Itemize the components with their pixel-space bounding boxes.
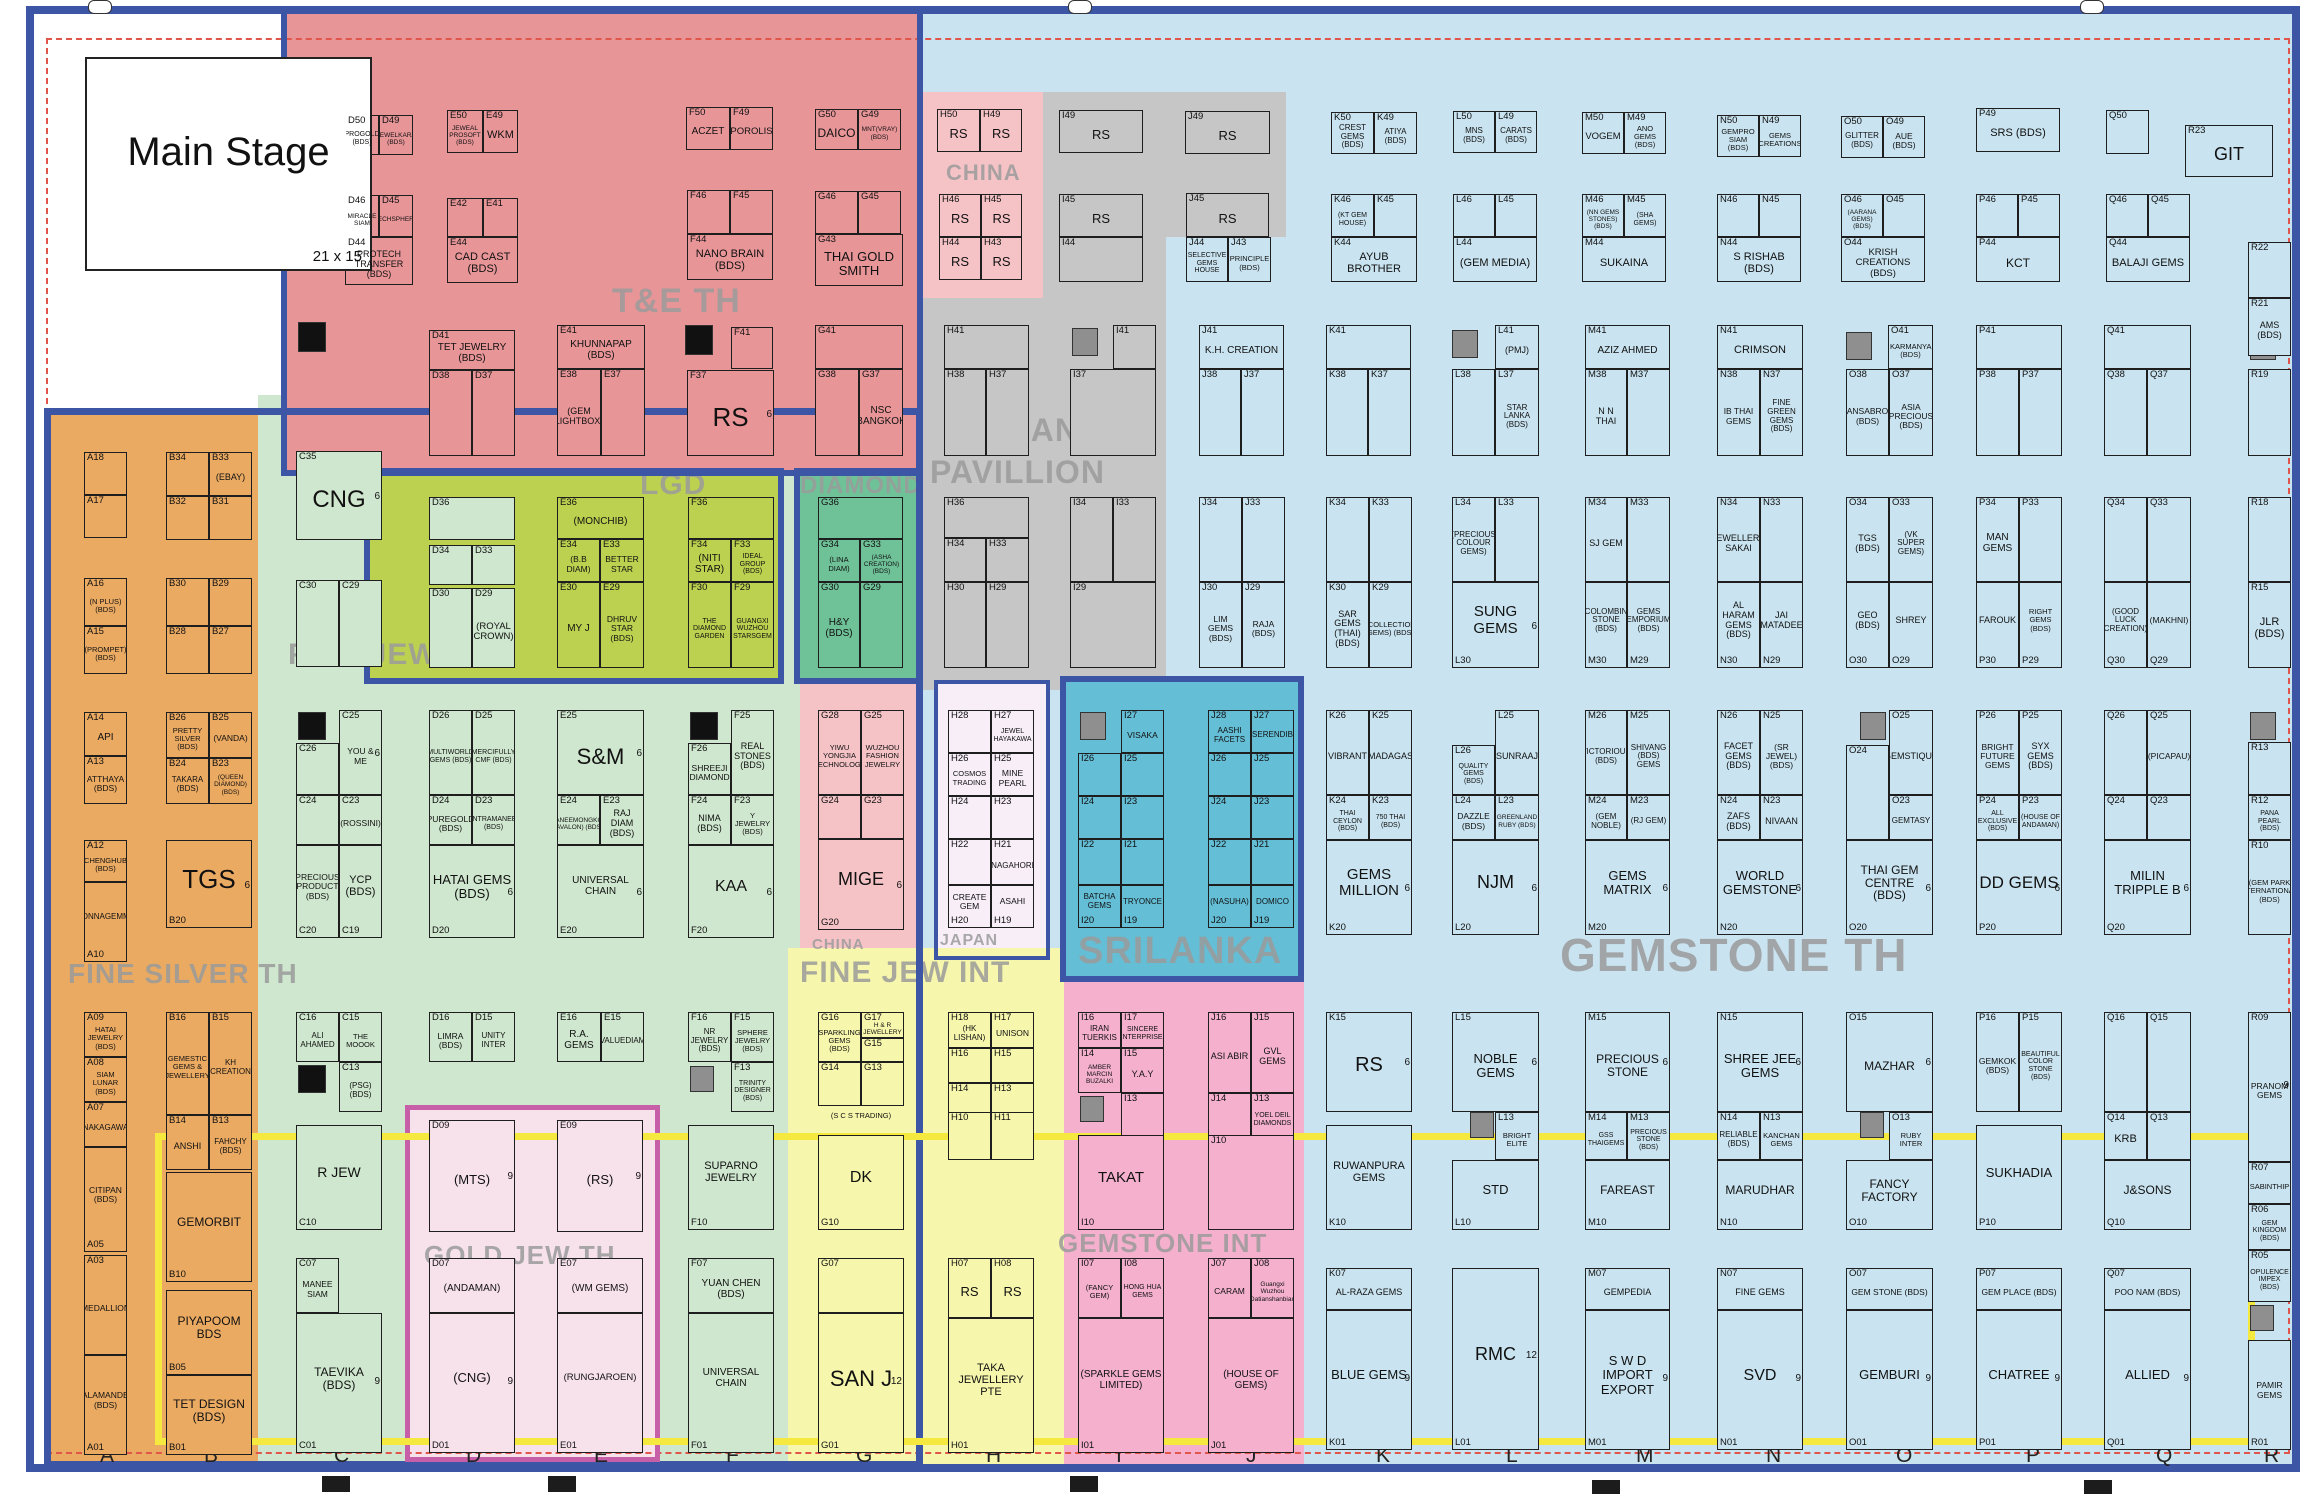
booth-M07[interactable]: M07 GEMPEDIA (1585, 1268, 1670, 1310)
booth-N44[interactable]: N44 S RISHAB (BDS) (1717, 237, 1801, 282)
booth-F15[interactable]: F15 SPHERE JEWELRY (BDS) (731, 1012, 774, 1062)
booth-J20[interactable]: J20 (NASUHA) (1208, 885, 1251, 928)
booth-B30[interactable]: B30 (166, 578, 209, 626)
booth-K23[interactable]: K23 750 THAI (BDS) (1369, 795, 1412, 840)
booth-G46[interactable]: G46 (815, 191, 858, 234)
booth-K20[interactable]: K20 6 GEMS MILLION (1326, 840, 1412, 935)
booth-G14[interactable]: G14 (818, 1062, 861, 1106)
booth-O23[interactable]: O23 GEMTASY (1889, 795, 1933, 840)
booth-F50[interactable]: F50 ACZET (686, 107, 730, 150)
booth-H44[interactable]: H44 RS (939, 237, 981, 280)
booth-K46[interactable]: K46 (KT GEM HOUSE) (1331, 194, 1374, 237)
booth-M14[interactable]: M14 GSS THAIGEMS (1585, 1112, 1627, 1160)
booth-A03[interactable]: A03 MEDALLION (84, 1255, 127, 1355)
booth-Q26[interactable]: Q26 (2104, 710, 2147, 795)
booth-N50[interactable]: N50 GEMPRO SIAM (BDS) (1717, 115, 1759, 157)
booth-M26[interactable]: M26 VICTORIOUS (BDS) (1585, 710, 1627, 795)
booth-D23[interactable]: D23 INTRAMANEE (BDS) (472, 795, 515, 845)
booth-H45[interactable]: H45 RS (981, 194, 1022, 237)
booth-I08[interactable]: I08 HONG HUA GEMS (1121, 1258, 1164, 1318)
booth-G34[interactable]: G34 (LINA DIAM) (818, 539, 860, 582)
booth-E15[interactable]: E15 VALUEDIAM (601, 1012, 644, 1062)
booth-B05[interactable]: B05 PIYAPOOM BDS (166, 1290, 252, 1375)
booth-H27[interactable]: H27 JEWEL HAYAKAWA (991, 710, 1034, 753)
booth-Q46[interactable]: Q46 (2106, 194, 2148, 237)
booth-G30[interactable]: G30 H&Y (BDS) (818, 582, 860, 668)
booth-I07[interactable]: I07 (FANCY GEM) (1078, 1258, 1121, 1318)
booth-O25[interactable]: O25 GEMSTIQUE (1889, 710, 1933, 795)
booth-L15[interactable]: L15 6 NOBLE GEMS (1452, 1012, 1539, 1112)
booth-M49[interactable]: M49 ANO GEMS (BDS) (1624, 112, 1666, 154)
booth-E16[interactable]: E16 R.A. GEMS (557, 1012, 601, 1062)
booth-C19[interactable]: C19 YCP (BDS) (339, 845, 382, 938)
booth-F23[interactable]: F23 Y JEWELRY (BDS) (731, 795, 774, 845)
booth-F45[interactable]: F45 (730, 190, 773, 234)
booth-P45[interactable]: P45 (2018, 194, 2060, 237)
booth-O24[interactable]: O24 (1846, 745, 1889, 840)
booth-D34[interactable]: D34 (429, 545, 472, 585)
booth-N41[interactable]: N41 CRIMSON (1717, 325, 1803, 369)
booth-G24[interactable]: G24 (818, 795, 861, 839)
booth-L45[interactable]: L45 (1495, 194, 1537, 237)
booth-D25[interactable]: D25 MERCIFULLY CMF (BDS) (472, 710, 515, 795)
booth-F25[interactable]: F25 REAL STONES (BDS) (731, 710, 774, 795)
booth-G10[interactable]: G10 DK (818, 1135, 904, 1230)
booth-A15[interactable]: A15 (PROMPET) (BDS) (84, 626, 127, 674)
booth-D15[interactable]: D15 UNITY INTER (472, 1012, 515, 1062)
booth-Q45[interactable]: Q45 (2148, 194, 2190, 237)
booth-D30[interactable]: D30 (429, 588, 472, 668)
booth-C16[interactable]: C16 ALI AHAMED (296, 1012, 339, 1062)
booth-M45[interactable]: M45 (SHA GEMS) (1624, 194, 1666, 237)
booth-Q30[interactable]: Q30 (GOOD LUCK CREATION) (2104, 582, 2147, 668)
booth-R10[interactable]: R10 (GEM PARK INTERNATIONAL) (BDS) (2248, 840, 2291, 935)
booth-J33[interactable]: J33 (1242, 497, 1285, 582)
booth-M33[interactable]: M33 (1627, 497, 1670, 582)
booth-H25[interactable]: H25 MINE PEARL (991, 753, 1034, 796)
booth-L26[interactable]: L26 QUALITY GEMS (BDS) (1452, 745, 1495, 795)
booth-E09[interactable]: E09 9 (RS) (557, 1120, 643, 1232)
booth-D16[interactable]: D16 LIMRA (BDS) (429, 1012, 472, 1062)
booth-O01[interactable]: O01 9 GEMBURI (1846, 1310, 1933, 1450)
booth-K45[interactable]: K45 (1374, 194, 1417, 237)
booth-O30[interactable]: O30 GEO (BDS) (1846, 582, 1889, 668)
booth-H37[interactable]: H37 (986, 369, 1029, 456)
booth-N10[interactable]: N10 MARUDHAR (1717, 1160, 1803, 1230)
booth-I27[interactable]: I27 VISAKA (1121, 710, 1164, 753)
booth-B26[interactable]: B26 PRETTY SILVER (BDS) (166, 712, 209, 758)
booth-G37[interactable]: G37 NSC BANGKOK (859, 369, 903, 456)
booth-Q44[interactable]: Q44 BALAJI GEMS (2106, 237, 2190, 282)
booth-F01[interactable]: F01 UNIVERSAL CHAIN (688, 1313, 774, 1453)
booth-Q33[interactable]: Q33 (2147, 497, 2191, 582)
booth-D26[interactable]: D26 MULTIWORLD GEMS (BDS) (429, 710, 472, 795)
booth-F07[interactable]: F07 YUAN CHEN (BDS) (688, 1258, 774, 1313)
booth-N30[interactable]: N30 AL HARAM GEMS (BDS) (1717, 582, 1760, 668)
booth-O07[interactable]: O07 GEM STONE (BDS) (1846, 1268, 1933, 1310)
booth-L37[interactable]: L37 STAR LANKA (BDS) (1495, 369, 1539, 456)
booth-D45[interactable]: D45 TECHSPHERE (379, 195, 413, 237)
booth-K34[interactable]: K34 (1326, 497, 1369, 582)
booth-K29[interactable]: K29 (COLLECTION GEMS) (BDS) (1369, 582, 1412, 668)
booth-P38[interactable]: P38 (1976, 369, 2019, 456)
booth-B28[interactable]: B28 (166, 626, 209, 674)
booth-O29[interactable]: O29 SHREY (1889, 582, 1933, 668)
booth-H20[interactable]: H20 CREATE GEM (948, 885, 991, 928)
booth-N24[interactable]: N24 ZAFS (BDS) (1717, 795, 1760, 840)
booth-J43[interactable]: J43 PRINCIPLE (BDS) (1228, 237, 1271, 282)
booth-M34[interactable]: M34 SJ GEM (1585, 497, 1627, 582)
booth-B24[interactable]: B24 TAKARA (BDS) (166, 758, 209, 804)
booth-B33[interactable]: B33 (EBAY) (209, 452, 252, 496)
booth-O49[interactable]: O49 AUE (BDS) (1883, 116, 1925, 158)
booth-D24[interactable]: D24 PUREGOLD (BDS) (429, 795, 472, 845)
booth-Q15[interactable]: Q15 (2147, 1012, 2191, 1112)
booth-G36[interactable]: G36 (818, 497, 903, 539)
booth-B32[interactable]: B32 (166, 496, 209, 540)
booth-C15[interactable]: C15 THE MOOOK (339, 1012, 382, 1062)
booth-M29[interactable]: M29 GEMS EMPORIUM (BDS) (1627, 582, 1670, 668)
booth-D41[interactable]: D41 TET JEWELRY (BDS) (429, 330, 515, 370)
booth-C07[interactable]: C07 MANEE SIAM (296, 1258, 339, 1313)
booth-J29[interactable]: J29 RAJA (BDS) (1242, 582, 1285, 668)
booth-H43[interactable]: H43 RS (981, 237, 1022, 280)
booth-H19[interactable]: H19 ASAHI (991, 885, 1034, 928)
booth-L20[interactable]: L20 6 NJM (1452, 840, 1539, 935)
booth-I44[interactable]: I44 (1059, 237, 1143, 282)
booth-J38[interactable]: J38 (1199, 369, 1241, 456)
booth-Q10[interactable]: Q10 J&SONS (2104, 1160, 2191, 1230)
booth-A13[interactable]: A13 ATTHAYA (BDS) (84, 756, 127, 804)
booth-P37[interactable]: P37 (2019, 369, 2062, 456)
booth-G49[interactable]: G49 MNT(VRAY) (BDS) (858, 109, 901, 150)
booth-P34[interactable]: P34 MAN GEMS (1976, 497, 2019, 582)
booth-D09[interactable]: D09 9 (MTS) (429, 1120, 515, 1232)
booth-G17[interactable]: G17 H & R JEWELLERY (861, 1012, 904, 1038)
booth-E36[interactable]: E36 (MONCHIB) (557, 497, 644, 539)
booth-I24[interactable]: I24 (1078, 796, 1121, 839)
booth-B34[interactable]: B34 (166, 452, 209, 496)
booth-N14[interactable]: N14 RELIABLE (BDS) (1717, 1112, 1760, 1160)
booth-C26[interactable]: C26 (296, 743, 339, 795)
booth-D36[interactable]: D36 (429, 497, 515, 540)
booth-K37[interactable]: K37 (1368, 369, 1411, 456)
booth-Q37[interactable]: Q37 (2147, 369, 2191, 456)
booth-N38[interactable]: N38 IB THAI GEMS (1717, 369, 1760, 456)
booth-D20[interactable]: D20 6 HATAI GEMS (BDS) (429, 845, 515, 938)
booth-R13[interactable]: R13 (2248, 742, 2291, 795)
booth-J30[interactable]: J30 LIM GEMS (BDS) (1199, 582, 1242, 668)
booth-O34[interactable]: O34 TGS (BDS) (1846, 497, 1889, 582)
booth-F37[interactable]: F37 6 RS (687, 370, 774, 456)
booth-A08[interactable]: A08 SIAM LUNAR (BDS) (84, 1057, 127, 1102)
booth-O13[interactable]: O13 RUBY INTER (1889, 1112, 1933, 1160)
booth-N07[interactable]: N07 FINE GEMS (1717, 1268, 1803, 1310)
booth-E37[interactable]: E37 (601, 369, 645, 456)
booth-E07[interactable]: E07 (WM GEMS) (557, 1258, 643, 1313)
booth-N46[interactable]: N46 (1717, 194, 1759, 237)
booth-G16[interactable]: G16 SPARKLING GEMS (BDS) (818, 1012, 861, 1062)
booth-D50[interactable]: D50 PROGOLD (BDS) (345, 115, 379, 155)
booth-J34[interactable]: J34 (1199, 497, 1242, 582)
booth-J15[interactable]: J15 GVL GEMS (1251, 1012, 1294, 1093)
booth-C23[interactable]: C23 (ROSSINI) (339, 795, 382, 845)
booth-I21[interactable]: I21 (1121, 839, 1164, 885)
booth-G50[interactable]: G50 DAICO (815, 109, 858, 150)
booth-L38[interactable]: L38 (1452, 369, 1495, 456)
booth-H34[interactable]: H34 (944, 538, 986, 582)
booth-Q16[interactable]: Q16 (2104, 1012, 2147, 1112)
booth-O33[interactable]: O33 (VK SUPER GEMS) (1889, 497, 1933, 582)
booth-H21[interactable]: H21 (NAGAHORI) (991, 839, 1034, 885)
booth-A05[interactable]: A05 CITIPAN (BDS) (84, 1147, 127, 1252)
booth-H36[interactable]: H36 (944, 497, 1029, 538)
booth-I34[interactable]: I34 (1070, 497, 1113, 582)
booth-A07[interactable]: A07 NAKAGAWA (84, 1102, 127, 1147)
booth-D38[interactable]: D38 (429, 370, 472, 456)
booth-B14[interactable]: B14 ANSHI (166, 1115, 209, 1170)
booth-K25[interactable]: K25 MADAGAS (1369, 710, 1412, 795)
booth-F20[interactable]: F20 6 KAA (688, 845, 774, 938)
booth-C13[interactable]: C13 (PSG) (BDS) (339, 1062, 382, 1112)
booth-C10[interactable]: C10 R JEW (296, 1125, 382, 1230)
booth-J24[interactable]: J24 (1208, 796, 1251, 839)
booth-J27[interactable]: J27 SERENDIB (1251, 710, 1294, 753)
booth-Q20[interactable]: Q20 6 MILIN TRIPPLE B (2104, 840, 2191, 935)
booth-R18[interactable]: R18 (2248, 497, 2291, 582)
booth-F26[interactable]: F26 SHREEJI DIAMOND (688, 743, 731, 795)
booth-G33[interactable]: G33 (ASHA CREATION) (BDS) (860, 539, 903, 582)
booth-P41[interactable]: P41 (1976, 325, 2062, 369)
booth-E30[interactable]: E30 MY J (557, 582, 600, 668)
booth-E25[interactable]: E25 6 S&M (557, 710, 644, 795)
booth-O41[interactable]: O41 KARMANYA (BDS) (1888, 325, 1933, 369)
booth-M23[interactable]: M23 (RJ GEM) (1627, 795, 1670, 840)
booth-K30[interactable]: K30 SAR GEMS (THAI) (BDS) (1326, 582, 1369, 668)
booth-D37[interactable]: D37 (472, 370, 515, 456)
booth-R01[interactable]: R01 PAMIR GEMS (2248, 1340, 2291, 1450)
booth-N15[interactable]: N15 6 SHREE JEE GEMS (1717, 1012, 1803, 1112)
booth-E38[interactable]: E38 (GEM LIGHTBOX) (557, 369, 601, 456)
booth-M24[interactable]: M24 (GEM NOBLE) (1585, 795, 1627, 840)
booth-R09[interactable]: R09 9 PRANOM GEMS (2248, 1012, 2291, 1162)
booth-H30[interactable]: H30 (944, 582, 986, 668)
booth-E41[interactable]: E41 KHUNNAPAP (BDS) (557, 325, 645, 369)
booth-O50[interactable]: O50 GLITTER (BDS) (1841, 116, 1883, 158)
booth-B13[interactable]: B13 FAHCHY (BDS) (209, 1115, 252, 1170)
booth-O44[interactable]: O44 KRISH CREATIONS (BDS) (1841, 237, 1925, 282)
booth-G01[interactable]: G01 12 SAN J (818, 1313, 904, 1453)
booth-B27[interactable]: B27 (209, 626, 252, 674)
booth-R12[interactable]: R12 PANA PEARL (BDS) (2248, 795, 2291, 840)
booth-F34[interactable]: F34 (NITI STAR) (688, 539, 731, 582)
booth-O38[interactable]: O38 ANSABRO (BDS) (1846, 369, 1889, 456)
booth-A14[interactable]: A14 API (84, 712, 127, 756)
booth-N20[interactable]: N20 6 WORLD GEMSTONE (1717, 840, 1803, 935)
booth-P01[interactable]: P01 9 CHATREE (1976, 1310, 2062, 1450)
booth-A12[interactable]: A12 CHENGHUB (BDS) (84, 840, 127, 882)
booth-C25[interactable]: C25 6 YOU & ME (339, 710, 382, 795)
booth-Q14[interactable]: Q14 KRB (2104, 1112, 2147, 1160)
booth-I25[interactable]: I25 (1121, 753, 1164, 796)
booth-M25[interactable]: M25 SHIVANG (BDS) GEMS (1627, 710, 1670, 795)
booth-G15[interactable]: G15 (861, 1038, 904, 1062)
booth-J13[interactable]: J13 YOEL DEIL DIAMONDS (1251, 1093, 1294, 1138)
booth-L30[interactable]: L30 6 SUNG GEMS (1452, 582, 1539, 668)
booth-I14[interactable]: I14 AMBER MARCIN BUZALKI (1078, 1048, 1121, 1093)
booth-J14[interactable]: J14 (1208, 1093, 1251, 1138)
booth-J45[interactable]: J45 RS (1186, 193, 1269, 237)
booth-N26[interactable]: N26 FACET GEMS (BDS) (1717, 710, 1760, 795)
booth-P26[interactable]: P26 BRIGHT FUTURE GEMS (1976, 710, 2019, 795)
booth-P25[interactable]: P25 SYX GEMS (BDS) (2019, 710, 2062, 795)
booth-N13[interactable]: N13 KANCHAN GEMS (1760, 1112, 1803, 1160)
booth-O15[interactable]: O15 6 MAZHAR (1846, 1012, 1933, 1112)
booth-H10[interactable]: H10 (948, 1112, 991, 1160)
booth-B29[interactable]: B29 (209, 578, 252, 626)
booth-N23[interactable]: N23 NIVAAN (1760, 795, 1803, 840)
booth-F13[interactable]: F13 TRINITY DESIGNER (BDS) (731, 1062, 774, 1112)
booth-Q41[interactable]: Q41 (2104, 325, 2191, 369)
booth-P20[interactable]: P20 6 DD GEMS (1976, 840, 2062, 935)
booth-J23[interactable]: J23 (1251, 796, 1294, 839)
booth-K50[interactable]: K50 CREST GEMS (BDS) (1331, 112, 1374, 154)
booth-H07[interactable]: H07 RS (948, 1258, 991, 1318)
booth-H01[interactable]: H01 TAKA JEWELLERY PTE (948, 1318, 1034, 1453)
booth-K44[interactable]: K44 AYUB BROTHER (1331, 237, 1417, 282)
booth-O20[interactable]: O20 6 THAI GEM CENTRE (BDS) (1846, 840, 1933, 935)
booth-K49[interactable]: K49 ATIYA (BDS) (1374, 112, 1417, 154)
booth-K10[interactable]: K10 RUWANPURA GEMS (1326, 1125, 1412, 1230)
booth-P16[interactable]: P16 GEMKOK (BDS) (1976, 1012, 2019, 1112)
booth-I15[interactable]: I15 Y.A.Y (1121, 1048, 1164, 1093)
booth-P10[interactable]: P10 SUKHADIA (1976, 1125, 2062, 1230)
booth-M38[interactable]: M38 N N THAI (1585, 369, 1627, 456)
booth-E23[interactable]: E23 RAJ DIAM (BDS) (600, 795, 644, 845)
booth-F46[interactable]: F46 (687, 190, 730, 234)
booth-R05[interactable]: R05 OPULENCE IMPEX (BDS) (2248, 1250, 2291, 1302)
booth-K15[interactable]: K15 6 RS (1326, 1012, 1412, 1112)
booth-B31[interactable]: B31 (209, 496, 252, 540)
booth-G43[interactable]: G43 THAI GOLD SMITH (815, 234, 903, 286)
booth-C35[interactable]: C35 6 CNG (296, 451, 382, 540)
booth-Q29[interactable]: Q29 (MAKHNI) (2147, 582, 2191, 668)
booth-F24[interactable]: F24 NIMA (BDS) (688, 795, 731, 845)
booth-H28[interactable]: H28 (948, 710, 991, 753)
booth-I41[interactable]: I41 (1113, 325, 1156, 369)
booth-J08[interactable]: J08 Guangxi Wuzhou Datianshanbian (1251, 1258, 1294, 1318)
booth-L24[interactable]: L24 DAZZLE (BDS) (1452, 795, 1495, 840)
booth-N25[interactable]: N25 (SR JEWEL) (BDS) (1760, 710, 1803, 795)
booth-H08[interactable]: H08 RS (991, 1258, 1034, 1318)
booth-I19[interactable]: I19 TRYONCE (1121, 885, 1164, 928)
booth-H11[interactable]: H11 (991, 1112, 1034, 1160)
booth-O10[interactable]: O10 FANCY FACTORY (1846, 1160, 1933, 1230)
booth-R21[interactable]: R21 AMS (BDS) (2248, 298, 2291, 356)
booth-Q07[interactable]: Q07 POO NAM (BDS) (2104, 1268, 2191, 1310)
booth-O46[interactable]: O46 (AARANA GEMS) (BDS) (1841, 194, 1883, 237)
booth-H23[interactable]: H23 (991, 796, 1034, 839)
booth-L23[interactable]: L23 GREENLAND RUBY (BDS) (1495, 795, 1539, 840)
booth-L44[interactable]: L44 (GEM MEDIA) (1453, 237, 1537, 282)
booth-I37[interactable]: I37 (1070, 369, 1156, 456)
booth-Q50[interactable]: Q50 (2106, 110, 2149, 154)
booth-O37[interactable]: O37 ASIA PRECIOUS (BDS) (1889, 369, 1933, 456)
booth-G13[interactable]: G13 (861, 1062, 904, 1106)
booth-Q23[interactable]: Q23 (2147, 795, 2191, 840)
booth-Q25[interactable]: Q25 (PICAPAU) (2147, 710, 2191, 795)
booth-J10[interactable]: J10 (1208, 1135, 1294, 1230)
booth-G45[interactable]: G45 (858, 191, 901, 234)
booth-M41[interactable]: M41 AZIZ AHMED (1585, 325, 1670, 369)
booth-Q34[interactable]: Q34 (2104, 497, 2147, 582)
booth-K38[interactable]: K38 (1326, 369, 1368, 456)
booth-P23[interactable]: P23 (HOUSE OF ANDAMAN) (2019, 795, 2062, 840)
booth-B23[interactable]: B23 (QUEEN DIAMOND) (BDS) (209, 758, 252, 804)
booth-G29[interactable]: G29 (860, 582, 903, 668)
booth-E01[interactable]: E01 (RUNGJAROEN) (557, 1313, 643, 1453)
booth-I01[interactable]: I01 (SPARKLE GEMS LIMITED) (1078, 1318, 1164, 1453)
booth-J28[interactable]: J28 AASHI FACETS (1208, 710, 1251, 753)
booth-B16[interactable]: B16 GEMESTIC GEMS & JEWELLERY (166, 1012, 209, 1115)
booth-M10[interactable]: M10 FAREAST (1585, 1160, 1670, 1230)
booth-J37[interactable]: J37 (1241, 369, 1284, 456)
booth-R23[interactable]: R23 GIT (2185, 125, 2273, 177)
booth-L41[interactable]: L41 (PMJ) (1495, 325, 1539, 369)
booth-K26[interactable]: K26 VIBRANT (1326, 710, 1369, 795)
booth-M46[interactable]: M46 (NN GEMS STONES) (BDS) (1582, 194, 1624, 237)
booth-I13[interactable]: I13 (1121, 1093, 1164, 1138)
booth-H41[interactable]: H41 (944, 325, 1029, 369)
booth-E29[interactable]: E29 DHRUV STAR (BDS) (600, 582, 644, 668)
booth-K24[interactable]: K24 THAI CEYLON (BDS) (1326, 795, 1369, 840)
booth-C30[interactable]: C30 (296, 580, 339, 667)
booth-B01[interactable]: B01 TET DESIGN (BDS) (166, 1375, 252, 1455)
booth-I26[interactable]: I26 (1078, 753, 1121, 796)
booth-J44[interactable]: J44 SELECTIVE GEMS HOUSE (1186, 237, 1228, 282)
booth-L33[interactable]: L33 (1495, 497, 1539, 582)
booth-B20[interactable]: B20 6 TGS (166, 840, 252, 928)
booth-P07[interactable]: P07 GEM PLACE (BDS) (1976, 1268, 2062, 1310)
booth-G38[interactable]: G38 (815, 369, 859, 456)
booth-P49[interactable]: P49 SRS (BDS) (1976, 108, 2060, 152)
booth-L49[interactable]: L49 CARATS (BDS) (1495, 111, 1537, 153)
booth-H49[interactable]: H49 RS (980, 109, 1022, 152)
booth-E50[interactable]: E50 JEWEAL PROSOFT (BDS) (447, 110, 483, 153)
booth-Q01[interactable]: Q01 9 ALLIED (2104, 1310, 2191, 1450)
booth-K41[interactable]: K41 (1326, 325, 1411, 369)
booth-F30[interactable]: F30 THE DIAMOND GARDEN (688, 582, 731, 668)
booth-E24[interactable]: E24 MANEEMONGKON (AVALON) (BDS) (557, 795, 600, 845)
booth-F10[interactable]: F10 SUPARNO JEWELRY (688, 1125, 774, 1230)
booth-L25[interactable]: L25 SUNRAAJ (1495, 710, 1539, 795)
booth-F49[interactable]: F49 POROLIS (730, 107, 773, 150)
booth-N29[interactable]: N29 JAI MATADEE (1760, 582, 1803, 668)
booth-A09[interactable]: A09 HATAI JEWELRY (BDS) (84, 1012, 127, 1057)
booth-C01[interactable]: C01 9 TAEVIKA (BDS) (296, 1313, 382, 1453)
booth-R06[interactable]: R06 GEM KINGDOM (BDS) (2248, 1204, 2291, 1250)
booth-I10[interactable]: I10 TAKAT (1078, 1135, 1164, 1230)
booth-J26[interactable]: J26 (1208, 753, 1251, 796)
booth-M01[interactable]: M01 9 S W D IMPORT EXPORT (1585, 1310, 1670, 1450)
booth-M13[interactable]: M13 PRECIOUS STONE (BDS) (1627, 1112, 1670, 1160)
booth-I49[interactable]: I49 RS (1059, 110, 1143, 153)
booth-P15[interactable]: P15 BEAUTIFUL COLOR STONE (BDS) (2019, 1012, 2062, 1112)
booth-B25[interactable]: B25 (VANDA) (209, 712, 252, 758)
booth-N01[interactable]: N01 9 SVD (1717, 1310, 1803, 1450)
booth-M15[interactable]: M15 6 PRECIOUS STONE (1585, 1012, 1670, 1112)
booth-R22[interactable]: R22 (2248, 242, 2291, 298)
